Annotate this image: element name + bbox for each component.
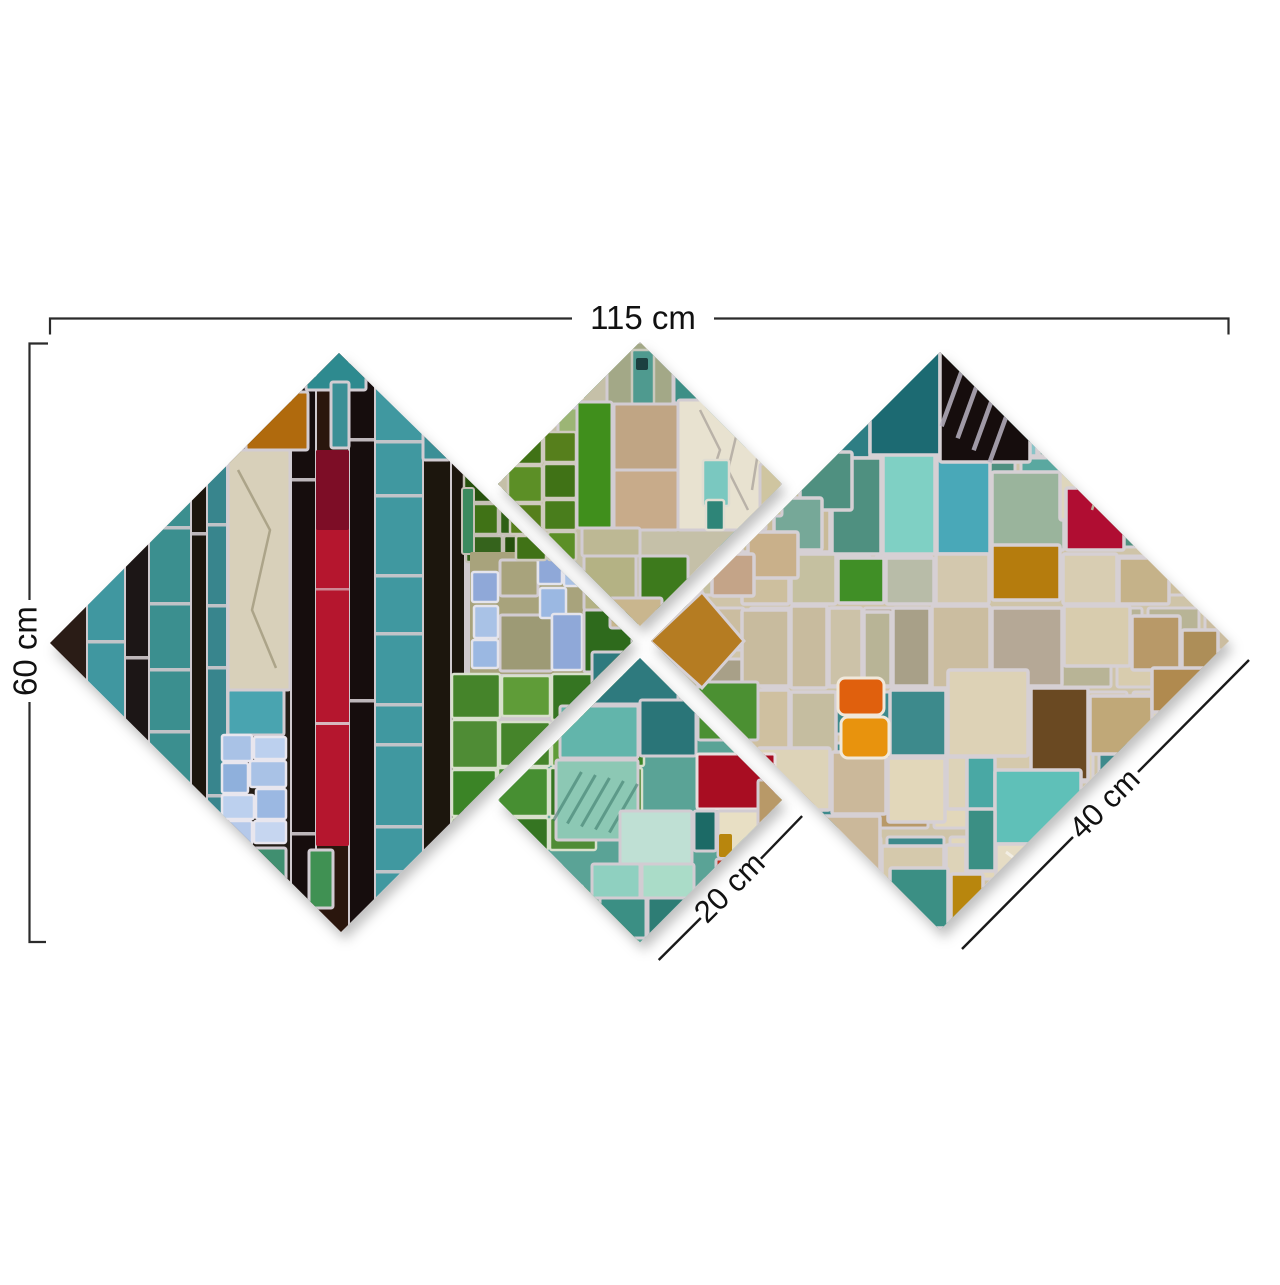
svg-text:60 cm: 60 cm bbox=[7, 606, 44, 696]
svg-text:115 cm: 115 cm bbox=[590, 299, 696, 336]
